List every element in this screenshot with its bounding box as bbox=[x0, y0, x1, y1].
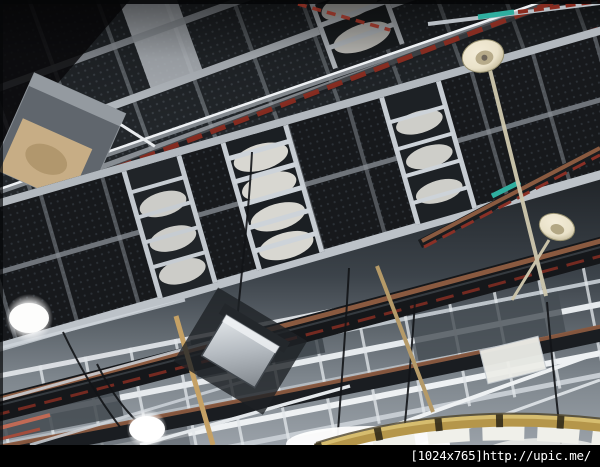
glowing-light-1 bbox=[0, 286, 61, 350]
photo-frame: [1024x765]http://upic.me/ bbox=[0, 0, 600, 467]
left-edge-strip bbox=[0, 0, 3, 445]
letterbox-bar: [1024x765]http://upic.me/ bbox=[0, 445, 600, 467]
top-edge-strip bbox=[0, 0, 600, 4]
watermark-url: [1024x765]http://upic.me/ bbox=[410, 445, 600, 467]
ceiling-photo bbox=[0, 0, 600, 445]
